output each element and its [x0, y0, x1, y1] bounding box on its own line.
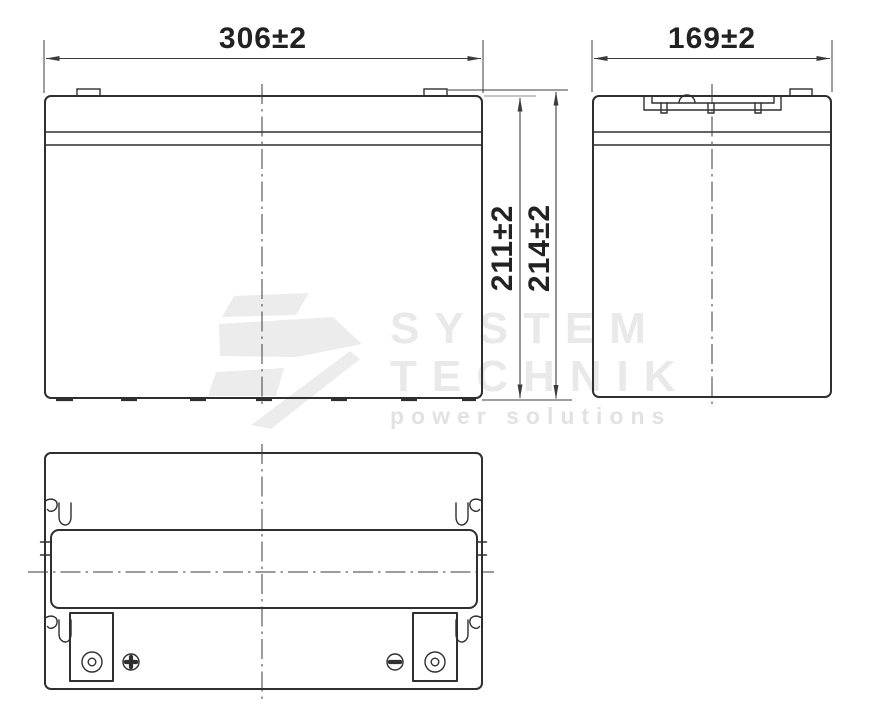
top-edge-ticks [41, 542, 487, 555]
watermark-line1: SYSTEM [390, 304, 661, 353]
case-height-label: 211±2 [486, 205, 519, 292]
front-band-lines [46, 132, 481, 145]
terminal-post-left [82, 652, 102, 672]
top-edge-hooks [45, 499, 482, 642]
total-height-label: 214±2 [523, 204, 556, 292]
watermark-tagline: power solutions [390, 403, 671, 429]
dim-side-width: 169±2 [592, 22, 832, 92]
side-width-label: 169±2 [668, 22, 756, 55]
drawing-svg: SYSTEM TECHNIK power solutions [0, 0, 890, 716]
watermark-logo-icon [208, 293, 362, 429]
positive-terminal-icon [123, 654, 139, 670]
front-terminal-left [77, 89, 100, 96]
top-case-outline [45, 453, 482, 689]
hooks-left [45, 499, 71, 642]
terminal-box-left [70, 613, 113, 681]
dim-front-width: 306±2 [44, 22, 483, 93]
terminal-box-right [413, 613, 457, 681]
watermark-line2: TECHNIK [390, 352, 691, 401]
handle-tabs [661, 103, 761, 113]
side-terminal-bump [790, 89, 812, 96]
terminal-post-right [425, 652, 445, 672]
front-width-label: 306±2 [219, 22, 307, 55]
battery-dimension-drawing: SYSTEM TECHNIK power solutions [0, 0, 890, 716]
top-view [28, 444, 494, 704]
hooks-right [456, 499, 482, 642]
front-terminal-right [424, 89, 447, 96]
top-inner-panel [51, 530, 477, 608]
watermark: SYSTEM TECHNIK power solutions [208, 293, 691, 429]
negative-terminal-icon [387, 654, 403, 670]
